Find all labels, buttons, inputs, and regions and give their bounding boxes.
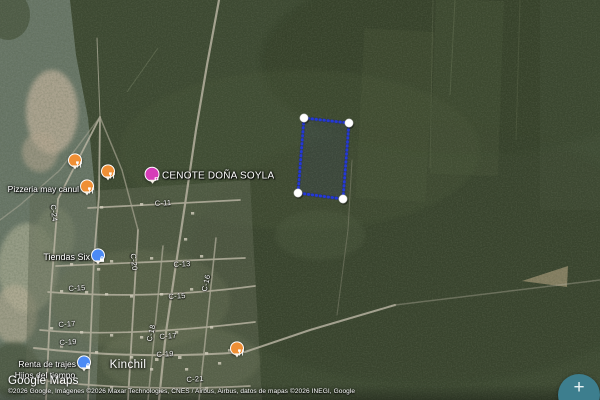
store-pin-tiendas-six[interactable]: [91, 248, 105, 262]
town-label-kinchil[interactable]: Kinchil: [110, 359, 147, 371]
poi-label-hijos-del-tiempo[interactable]: Hijos del tiempo: [15, 370, 75, 380]
restaurant-pin[interactable]: [68, 153, 82, 167]
poi-label-renta-de-trajes[interactable]: Renta de trajes: [18, 359, 76, 369]
attraction-pin-cenote[interactable]: [145, 167, 160, 182]
selection-polygon[interactable]: [294, 114, 355, 205]
poi-label-cenote[interactable]: CENOTE DOÑA SOYLA: [162, 171, 274, 182]
poi-label-pizzeria[interactable]: Pizzeria may canul: [8, 184, 79, 194]
restaurant-pin-pizzeria[interactable]: [80, 179, 94, 193]
poi-label-tiendas-six[interactable]: Tiendas Six: [43, 252, 90, 262]
restaurant-pin[interactable]: [230, 341, 244, 355]
restaurant-pin[interactable]: [101, 164, 115, 178]
store-pin-renta-de-trajes[interactable]: [77, 355, 91, 369]
plus-icon: +: [573, 377, 584, 399]
map-canvas[interactable]: Pizzeria may canul CENOTE DOÑA SOYLA Tie…: [0, 0, 600, 400]
satellite-imagery: [0, 0, 600, 400]
